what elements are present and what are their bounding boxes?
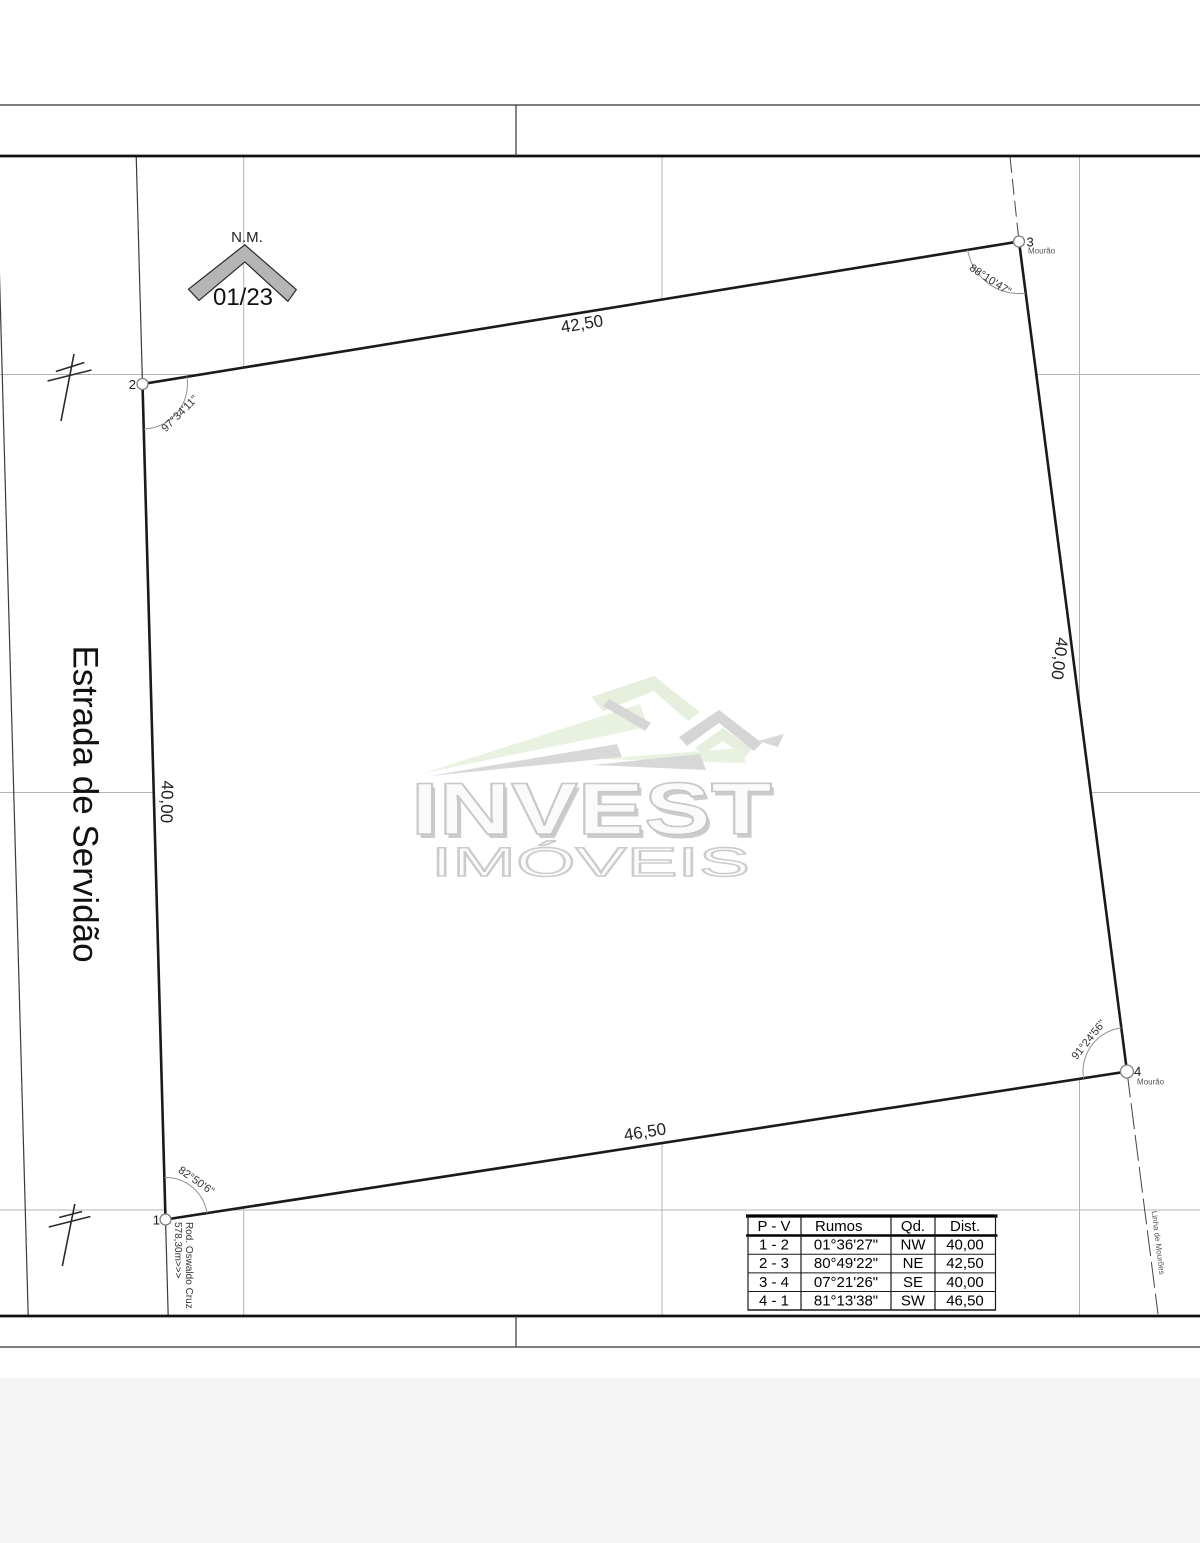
svg-text:80°49'22": 80°49'22"	[814, 1255, 878, 1272]
svg-text:Rod. Oswaldo Cruz: Rod. Oswaldo Cruz	[183, 1222, 194, 1309]
svg-text:2 - 3: 2 - 3	[759, 1255, 789, 1272]
svg-text:NE: NE	[903, 1255, 924, 1272]
svg-text:Estrada de Servidão: Estrada de Servidão	[66, 645, 105, 962]
svg-text:Mourão: Mourão	[1137, 1078, 1165, 1087]
svg-text:42,50: 42,50	[946, 1255, 984, 1272]
svg-text:NW: NW	[901, 1237, 927, 1254]
svg-text:46,50: 46,50	[946, 1292, 984, 1309]
svg-text:Rumos: Rumos	[815, 1218, 863, 1235]
svg-text:Mourão: Mourão	[1028, 247, 1056, 256]
svg-text:81°13'38": 81°13'38"	[814, 1292, 878, 1309]
svg-text:07°21'26": 07°21'26"	[814, 1274, 878, 1291]
svg-text:3 - 4: 3 - 4	[759, 1274, 789, 1291]
svg-text:1 - 2: 1 - 2	[759, 1237, 789, 1254]
svg-text:P - V: P - V	[757, 1218, 790, 1235]
svg-text:4 - 1: 4 - 1	[759, 1292, 789, 1309]
svg-text:Qd.: Qd.	[901, 1218, 925, 1235]
svg-text:INVEST: INVEST	[411, 769, 772, 850]
svg-text:01/23: 01/23	[213, 284, 273, 311]
svg-text:40,00: 40,00	[946, 1237, 984, 1254]
svg-text:Dist.: Dist.	[950, 1218, 980, 1235]
svg-text:SE: SE	[903, 1274, 923, 1291]
svg-text:2: 2	[129, 377, 136, 392]
svg-text:SW: SW	[901, 1292, 926, 1309]
svg-text:N.M.: N.M.	[231, 229, 263, 246]
svg-text:578,30m>>>: 578,30m>>>	[172, 1222, 183, 1279]
svg-text:1: 1	[153, 1213, 160, 1228]
svg-text:IMÓVEIS: IMÓVEIS	[431, 839, 750, 885]
svg-text:40,00: 40,00	[946, 1274, 984, 1291]
svg-text:40,00: 40,00	[157, 780, 177, 823]
svg-text:01°36'27": 01°36'27"	[814, 1237, 878, 1254]
